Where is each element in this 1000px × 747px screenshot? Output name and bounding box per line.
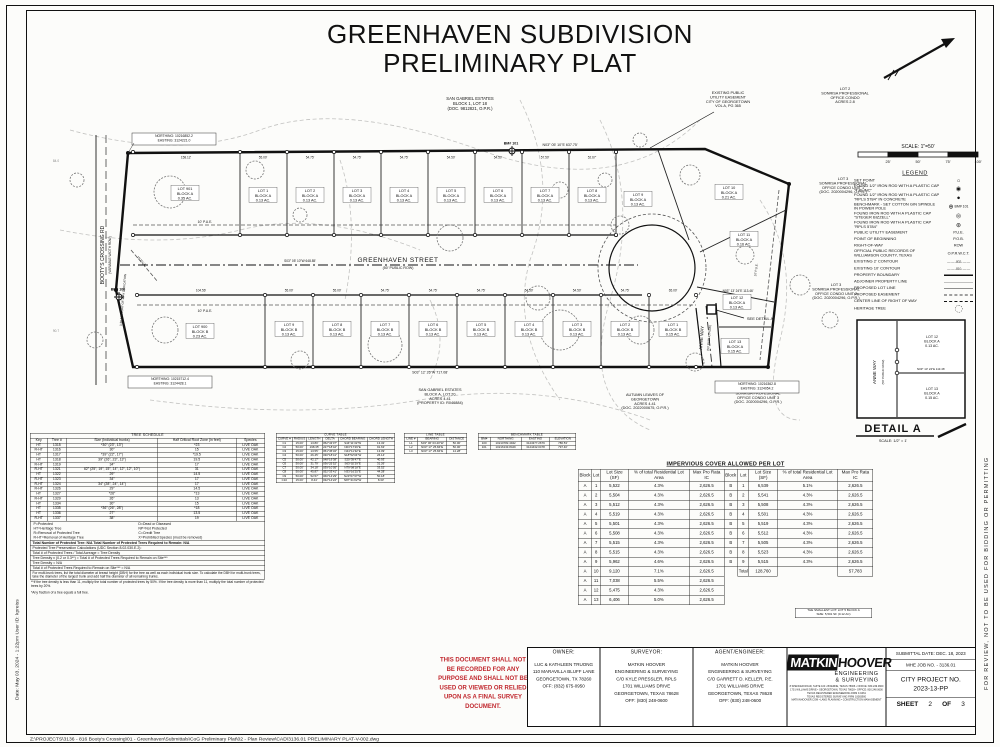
- title-block-line: GEORGETOWN, TEXAS 78628: [693, 690, 786, 697]
- table-cell: B: [724, 529, 738, 539]
- table-cell: 5,515: [601, 548, 629, 558]
- title-block-line: ENGINEERING & SURVEYING: [600, 668, 692, 675]
- column-header: Lot Size (SF): [749, 469, 777, 481]
- scale-tick: 50': [916, 160, 921, 164]
- scale-tick: 25': [886, 160, 891, 164]
- table-cell: 12: [592, 586, 601, 596]
- set-point: [359, 293, 362, 296]
- text-icon: P.O.B.: [941, 237, 976, 242]
- table-cell: 14.28': [447, 450, 467, 454]
- legend-item-label: ADJOINER PROPERTY LINE: [854, 280, 941, 284]
- set-point: [263, 293, 266, 296]
- title-block-line: OFF: (830) 248-0600: [600, 697, 692, 704]
- sheet-label: SHEET: [897, 700, 919, 708]
- table-cell: 3: [738, 500, 749, 510]
- column-header: Lot: [592, 469, 601, 481]
- dim-label: 54.75': [400, 156, 409, 160]
- table-cell: 101: [478, 446, 490, 450]
- table-cell: 5.5%: [628, 576, 689, 586]
- table-cell: 4.3%: [777, 538, 838, 548]
- dim-label: 158.12': [181, 156, 192, 160]
- table-cell: 5,522: [601, 481, 629, 491]
- table-cell: 2,626.5: [838, 557, 873, 567]
- scale-bar: [948, 152, 978, 157]
- lot-label: LOT 13BLOCK A0.15 AC.: [727, 340, 744, 354]
- detail-a-lot13: LOT 13BLOCK A0.15 AC.: [924, 387, 940, 400]
- table-cell: 797.40': [550, 446, 576, 450]
- bootys-crossing-sub: (VARIABLE WIDTH ROW): [108, 236, 112, 273]
- legend-item-label: PROPOSED EASEMENT: [854, 293, 941, 297]
- table-row: A85,5154.3%2,626.5B85,5234.3%2,626.5: [578, 548, 873, 558]
- table-cell: 4: [592, 510, 601, 520]
- table-cell: 6: [738, 529, 749, 539]
- dim-label: 54.50': [573, 289, 582, 293]
- detail-a-scale: SCALE: 1/2" = 1': [879, 439, 908, 443]
- bearing-label: N03° 13' 24"E 113.46': [723, 289, 754, 293]
- legend-item: CENTER LINE OF RIGHT OF WAY: [854, 298, 976, 304]
- legend-item-label: HERITAGE TREE: [854, 307, 941, 311]
- pue-line: [760, 190, 779, 360]
- dim-label: 55.00': [285, 289, 294, 293]
- legend-item: FOUND IRON ROD WITH A PLASTIC CAP "RPLS …: [854, 221, 976, 230]
- table-cell: 2,626.5: [838, 529, 873, 539]
- line-dashed-icon: [941, 292, 976, 297]
- scale-bar: [918, 152, 948, 157]
- table-cell: L3: [404, 450, 417, 454]
- table-cell: 2,626.5: [838, 519, 873, 529]
- circle-ring-icon: ◎: [941, 213, 976, 218]
- leader-line: [650, 112, 714, 148]
- table-cell: [838, 595, 873, 605]
- set-point: [311, 293, 314, 296]
- table-cell: A: [578, 538, 592, 548]
- owner-heading: OWNER:: [528, 650, 599, 656]
- table-cell: 3124432.0478: [521, 446, 550, 450]
- table-cell: 4.3%: [628, 481, 689, 491]
- cul-de-sac-row: [609, 225, 695, 311]
- plat-drawing: BOOTY'S CROSSING RD(VARIABLE WIDTH ROW)0…: [0, 0, 1000, 747]
- heritage-tree: [293, 208, 307, 222]
- table-cell: 4.3%: [628, 519, 689, 529]
- table-cell: 2,626.5: [689, 481, 724, 491]
- table-cell: 9,120: [601, 567, 629, 577]
- table-cell: 11: [592, 576, 601, 586]
- tree-footnote: *Any fraction of a tree equals a full tr…: [30, 590, 265, 596]
- table-cell: 2,626.5: [838, 500, 873, 510]
- project-info-panel: SUBMITTAL DATE: DEC. 18, 2023 MHE JOB NO…: [885, 648, 975, 726]
- table-cell: [749, 576, 777, 586]
- table-cell: 5,505: [749, 538, 777, 548]
- coordinate-label: NORTHING: 10215712.4EASTING: 3124428.1: [151, 377, 189, 386]
- legend-item: OFFICIAL PUBLIC RECORDS OF WILLIAMSON CO…: [854, 249, 976, 258]
- table-cell: 2,626.5: [838, 481, 873, 491]
- table-cell: 4.3%: [628, 500, 689, 510]
- easement-note: EXISTING PUBLICUTILITY EASEMENTCITY OF G…: [706, 91, 750, 108]
- table-cell: A: [578, 548, 592, 558]
- bearing-label: S03° 05' 10"W 648.85': [284, 259, 316, 263]
- circle-filled-icon: ●: [941, 195, 976, 200]
- table-cell: 4: [738, 510, 749, 520]
- scale-bar: [888, 152, 918, 157]
- table-cell: 3: [592, 500, 601, 510]
- table-cell: 13: [592, 595, 601, 605]
- contour-label: 84.0: [53, 159, 59, 163]
- contour-line: [340, 160, 351, 300]
- line-med-icon: [941, 286, 976, 291]
- column-header: Max Pro Rata IC: [838, 469, 873, 481]
- table-row: A95,9624.6%2,626.5B95,5154.3%2,626.5: [578, 557, 873, 567]
- table-cell: 2,626.5: [689, 510, 724, 520]
- table-cell: A: [578, 491, 592, 501]
- table-cell: B: [724, 519, 738, 529]
- sheet-of: OF: [942, 700, 951, 708]
- agent-heading: AGENT/ENGINEER:: [693, 650, 786, 656]
- stamp-line: UPON AS A FINAL SURVEY: [433, 692, 533, 701]
- submittal-date: SUBMITTAL DATE: DEC. 18, 2023: [886, 648, 975, 660]
- table-cell: [749, 586, 777, 596]
- table-cell: 9: [592, 557, 601, 567]
- table-cell: B: [724, 510, 738, 520]
- detail-a-monument: [895, 348, 899, 352]
- table-row: A117,0385.5%2,626.5: [578, 576, 873, 586]
- table-cell: [777, 586, 838, 596]
- set-point: [332, 233, 335, 236]
- city-project-label: CITY PROJECT NO.: [886, 675, 975, 684]
- set-point: [599, 365, 602, 368]
- heritage-tree: [736, 246, 754, 264]
- detail-a-anne-sub: (50' PUBLIC ROW): [881, 360, 885, 385]
- dim-label: 54.75': [381, 289, 390, 293]
- set-point: [503, 293, 506, 296]
- pue-label: 10' P.U.E.: [198, 220, 213, 224]
- legend-item: BENCHMARK - SET COTTON GIN SPINDLE IN PO…: [854, 202, 976, 211]
- table-cell: 052°33'41": [322, 470, 338, 474]
- dim-label: 54.75': [429, 289, 438, 293]
- table-cell: A: [578, 567, 592, 577]
- table-cell: 5,512: [749, 529, 777, 539]
- table-cell: 4.3%: [628, 529, 689, 539]
- table-cell: B: [724, 557, 738, 567]
- sheet-current: 2: [928, 700, 932, 708]
- tree-multitrunk-note: For multi-trunk trees, list the total di…: [31, 570, 265, 579]
- column-header: % of total Residential Lot Area: [777, 469, 838, 481]
- legend-item-label: FOUND IRON ROD WITH A PLASTIC CAP "RPLS …: [854, 221, 941, 230]
- table-cell: A: [578, 481, 592, 491]
- legend-item-label: EXISTING 10' CONTOUR: [854, 266, 941, 270]
- smallest-lot-note-line: SIZE: 5,501 SF (0.12 AC): [797, 613, 871, 617]
- legend-item-label: EXISTING 2' CONTOUR: [854, 259, 941, 263]
- table-row: A35,5124.3%2,626.5B35,5084.3%2,626.5: [578, 500, 873, 510]
- table-cell: 128,760: [749, 567, 777, 577]
- tree-footnote: **If the tree density is less than 11, m…: [30, 579, 265, 590]
- title-block-line: LUC & KATHLEEN TRUONG: [528, 661, 599, 668]
- contour-icon: — — -802- — —: [941, 258, 976, 265]
- stamp-line: THIS DOCUMENT SHALL NOT: [433, 655, 533, 664]
- table-cell: 15.00': [292, 479, 306, 483]
- legend-item: PUBLIC UTILITY EASEMENTP.U.E.: [854, 230, 976, 236]
- north-arrow: [884, 42, 948, 78]
- adjoiner-label: AUTUMN LEAVES OFGEORGETOWNACRES 4.41(DOC…: [621, 393, 669, 410]
- dim-label: 54.50': [494, 156, 503, 160]
- contour-icon: — — -810- — —: [941, 265, 976, 272]
- table-cell: 032°14'22": [322, 479, 338, 483]
- pue-label: 10' P.U.E.: [198, 309, 213, 313]
- table-row: A25,5044.3%2,626.5B25,5414.3%2,626.5: [578, 491, 873, 501]
- table-cell: [838, 576, 873, 586]
- table-cell: A: [578, 529, 592, 539]
- table-cell: 5,541: [749, 491, 777, 501]
- not-for-recording-stamp: THIS DOCUMENT SHALL NOTBE RECORDED FOR A…: [433, 655, 533, 711]
- logo-sub-surveying: & SURVEYING: [787, 677, 878, 683]
- found-rod: [766, 365, 770, 369]
- dim-label: 54.75': [621, 289, 630, 293]
- table-cell: 4.3%: [777, 557, 838, 567]
- bearing-label: N03° 05' 10"E 637.75': [542, 143, 577, 147]
- lot-label: LOT 900BLOCK B0.23 AC.: [192, 325, 209, 339]
- contour-label: 90.7: [53, 329, 59, 333]
- line-thick-icon: [941, 273, 976, 278]
- scale-tick: 100': [974, 160, 981, 164]
- table-row: A15,5224.3%2,626.5B16,5395.1%2,626.5: [578, 481, 873, 491]
- legend-item-label: BENCHMARK - SET COTTON GIN SPINDLE IN PO…: [854, 202, 941, 211]
- set-point: [503, 365, 506, 368]
- table-cell: 8: [738, 548, 749, 558]
- contour-line: [150, 393, 650, 420]
- table-cell: 5,508: [601, 529, 629, 539]
- table-cell: [738, 576, 749, 586]
- stamp-line: USED OR VIEWED OR RELIED: [433, 683, 533, 692]
- table-cell: N03° 17' 25.84"E: [418, 450, 447, 454]
- tree-legend-entry: C=Credit Tree: [138, 531, 261, 535]
- set-point: [379, 233, 382, 236]
- legend-item-label: FOUND 1/2" IRON ROD WITH A PLASTIC CAP "…: [854, 193, 941, 202]
- table-cell: B: [724, 491, 738, 501]
- set-point: [473, 150, 476, 153]
- table-cell: 4.3%: [777, 500, 838, 510]
- heritage-tree: [822, 312, 838, 328]
- table-row: A55,5014.3%2,626.5B55,5194.3%2,626.5: [578, 519, 873, 529]
- text-icon: ROW: [941, 243, 976, 248]
- job-number: MHE JOB NO. - 3136.01: [886, 660, 975, 672]
- table-cell: 2,626.5: [689, 548, 724, 558]
- table-cell: 2,626.5: [689, 529, 724, 539]
- table-cell: A: [578, 576, 592, 586]
- table-row: C1015.00'8.44'032°14'22"N87°41'02"W8.33': [276, 479, 395, 483]
- table-cell: 2,626.5: [689, 567, 724, 577]
- table-cell: 5.1%: [777, 481, 838, 491]
- matkin-hoover-logo-panel: MATKINHOOVER ENGINEERING & SURVEYING 8 S…: [786, 648, 885, 726]
- impervious-cover-table: IMPERVIOUS COVER ALLOWED PER LOTBlockLot…: [578, 460, 873, 605]
- benchmark-symbol: [507, 146, 517, 156]
- legend-item-label: SET POINT: [854, 178, 941, 182]
- anne-way-sub: (50' PUBLIC ROW): [706, 325, 712, 351]
- set-point: [551, 365, 554, 368]
- set-point: [285, 233, 288, 236]
- title-block: OWNER: LUC & KATHLEEN TRUONG110 MARAVILL…: [527, 647, 976, 727]
- text-icon: O.P.R.W.C.T.: [941, 251, 976, 256]
- table-cell: 5: [738, 519, 749, 529]
- set-point: [473, 233, 476, 236]
- table-cell: C10: [276, 479, 292, 483]
- table-cell: 5,519: [749, 519, 777, 529]
- table-row: A45,5194.3%2,626.5B45,5014.3%2,626.5: [578, 510, 873, 520]
- table-cell: [777, 576, 838, 586]
- table-cell: 4.3%: [777, 548, 838, 558]
- adjoiner-label: SAN GABRIEL ESTATESBLOCK 1, LOT 18(DOC. …: [446, 96, 494, 111]
- legend-item: ADJOINER PROPERTY LINE: [854, 279, 976, 285]
- table-cell: 7,038: [601, 576, 629, 586]
- table-cell: 5,501: [749, 510, 777, 520]
- table-cell: 10216133.8429: [490, 446, 521, 450]
- set-point: [311, 365, 314, 368]
- legend-item: PROPOSED EASEMENT: [854, 292, 976, 298]
- table-cell: 2,626.5: [838, 538, 873, 548]
- column-header: Max Pro Rata IC: [689, 469, 724, 481]
- table-cell: 2,626.5: [689, 576, 724, 586]
- set-point: [647, 293, 650, 296]
- set-point: [238, 150, 241, 153]
- city-project-value: 2023-13-PP: [886, 684, 975, 693]
- dim-label: 54.75': [477, 289, 486, 293]
- table-cell: 4.3%: [628, 586, 689, 596]
- table-cell: 2,626.5: [689, 500, 724, 510]
- detail-a-monument: [895, 371, 899, 375]
- tree-icon: [941, 305, 976, 313]
- title-block-line: 1701 WILLIAMS DRIVE: [600, 683, 692, 690]
- table-cell: B: [724, 548, 738, 558]
- sheet-total: 3: [961, 700, 965, 708]
- set-point: [238, 233, 241, 236]
- legend-item: PROPERTY BOUNDARY: [854, 272, 976, 278]
- table-cell: 5,519: [601, 510, 629, 520]
- legend-item: FOUND IRON ROD WITH A PLASTIC CAP "STEGE…: [854, 211, 976, 220]
- title-block-line: GEORGETOWN, TEXAS 78628: [600, 690, 692, 697]
- dim-label: 52.67': [588, 156, 597, 160]
- legend-item: EXISTING 10' CONTOUR— — -810- — —: [854, 265, 976, 272]
- set-point: [135, 365, 138, 368]
- detail-a-dim: N03° 13' 24"E 113.46': [917, 367, 945, 371]
- table-cell: 4.3%: [628, 538, 689, 548]
- table-cell: 4.3%: [777, 519, 838, 529]
- legend-item: PROPOSED LOT LINE: [854, 285, 976, 291]
- table-cell: 2,626.5: [689, 491, 724, 501]
- table-cell: 8.44': [307, 479, 322, 483]
- table-cell: 5,515: [749, 557, 777, 567]
- table-cell: 2,626.5: [689, 586, 724, 596]
- smallest-lot-note: THE SMALLEST LOT: LOT 5 BLOCK ASIZE: 5,5…: [795, 608, 872, 618]
- set-point: [647, 365, 650, 368]
- dim-label: 54.50': [525, 289, 534, 293]
- set-point: [694, 293, 697, 296]
- legend-item-label: FOUND 1/2" IRON ROD WITH A PLASTIC CAP "…: [854, 184, 941, 193]
- table-cell: Total: [738, 567, 749, 577]
- detail-a-anne-label: ANNE WAY: [872, 360, 877, 384]
- circle-open-icon: ○: [941, 178, 976, 183]
- dim-label: 55.00': [333, 289, 342, 293]
- table-row: A65,5084.3%2,626.5B65,5124.3%2,626.5: [578, 529, 873, 539]
- set-point: [520, 233, 523, 236]
- table-cell: 5,475: [601, 586, 629, 596]
- table-cell: 2,626.5: [689, 595, 724, 605]
- set-point: [567, 233, 570, 236]
- set-point: [567, 150, 570, 153]
- lot-label: LOT 10BLOCK A0.21 AC.: [721, 186, 738, 200]
- dim-label: 54.50': [447, 156, 456, 160]
- legend: LEGEND SET POINT○FOUND 1/2" IRON ROD WIT…: [854, 170, 976, 313]
- table-cell: B: [724, 538, 738, 548]
- found-rod: [787, 182, 791, 186]
- table-cell: B: [724, 500, 738, 510]
- column-header: CURVE #: [276, 437, 292, 441]
- table-cell: A: [578, 586, 592, 596]
- table-cell: 5,962: [601, 557, 629, 567]
- circle-dot-icon: ◉: [941, 186, 976, 191]
- table-row: A109,1207.1%2,626.5Total128,76057,783: [578, 567, 873, 577]
- table-cell: 2,626.5: [838, 548, 873, 558]
- table-cell: 7: [738, 538, 749, 548]
- set-point: [455, 293, 458, 296]
- legend-item-label: PROPERTY BOUNDARY: [854, 273, 941, 277]
- anne-way-east-row: [716, 303, 721, 367]
- stamp-line: BE RECORDED FOR ANY: [433, 664, 533, 673]
- table-cell: 5,512: [601, 500, 629, 510]
- table-cell: [738, 586, 749, 596]
- table-cell: [777, 567, 838, 577]
- table-cell: A: [578, 519, 592, 529]
- leader-line: [716, 310, 744, 318]
- table-cell: 2,626.5: [838, 510, 873, 520]
- set-point: [359, 365, 362, 368]
- scale-bar: [858, 152, 888, 157]
- tree-legend-entry: D=Dead or Diseased: [138, 522, 261, 526]
- table-cell: [749, 595, 777, 605]
- benchmark-icon: ⊕ BM# 101: [941, 204, 976, 210]
- title-block-line: MATKIN HOOVER: [693, 661, 786, 668]
- table-cell: 6,539: [749, 481, 777, 491]
- tree-legend-entry: R-HT=Removal of Heritage Tree: [34, 536, 139, 540]
- table-cell: 5,504: [601, 491, 629, 501]
- table-cell: N87°41'02"W: [338, 479, 367, 483]
- table-cell: [777, 595, 838, 605]
- set-point: [426, 150, 429, 153]
- legend-item: POINT OF BEGINNINGP.O.B.: [854, 236, 976, 242]
- table-cell: 4.3%: [777, 510, 838, 520]
- table-title: IMPERVIOUS COVER ALLOWED PER LOT: [578, 460, 873, 469]
- title-block-line: OFF: (830) 248-0600: [693, 697, 786, 704]
- table-cell: 8: [592, 548, 601, 558]
- table-cell: 2: [592, 491, 601, 501]
- table-cell: B: [724, 481, 738, 491]
- anne-way-label: ANNE WAY: [698, 326, 705, 350]
- table-cell: A: [578, 510, 592, 520]
- table-cell: 57,783: [838, 567, 873, 577]
- table-row: L3N03° 17' 25.84"E14.28': [404, 450, 467, 454]
- table-cell: 4.3%: [777, 491, 838, 501]
- benchmark-table: BENCHMARK TABLEBM#NORTHINGEASTINGELEVATI…: [478, 433, 576, 450]
- column-header: Lot Size (SF): [601, 469, 629, 481]
- table-cell: 6,406: [601, 595, 629, 605]
- title-block-line: ENGINEERING & SURVEYING: [693, 668, 786, 675]
- table-cell: 2,626.5: [689, 538, 724, 548]
- set-point: [455, 365, 458, 368]
- dim-label: 57.50': [541, 156, 550, 160]
- title-block-line: MATKINHOOVER.COM • LAND PLANNING • CONST…: [787, 699, 885, 702]
- greenhaven-street-sub: (50' PUBLIC ROW): [383, 266, 414, 270]
- legend-item: FOUND 1/2" IRON ROD WITH A PLASTIC CAP "…: [854, 193, 976, 202]
- table-cell: 1: [738, 481, 749, 491]
- lot-label: LOT 12BLOCK A0.13 AC.: [729, 296, 746, 310]
- scale-tick: 75': [946, 160, 951, 164]
